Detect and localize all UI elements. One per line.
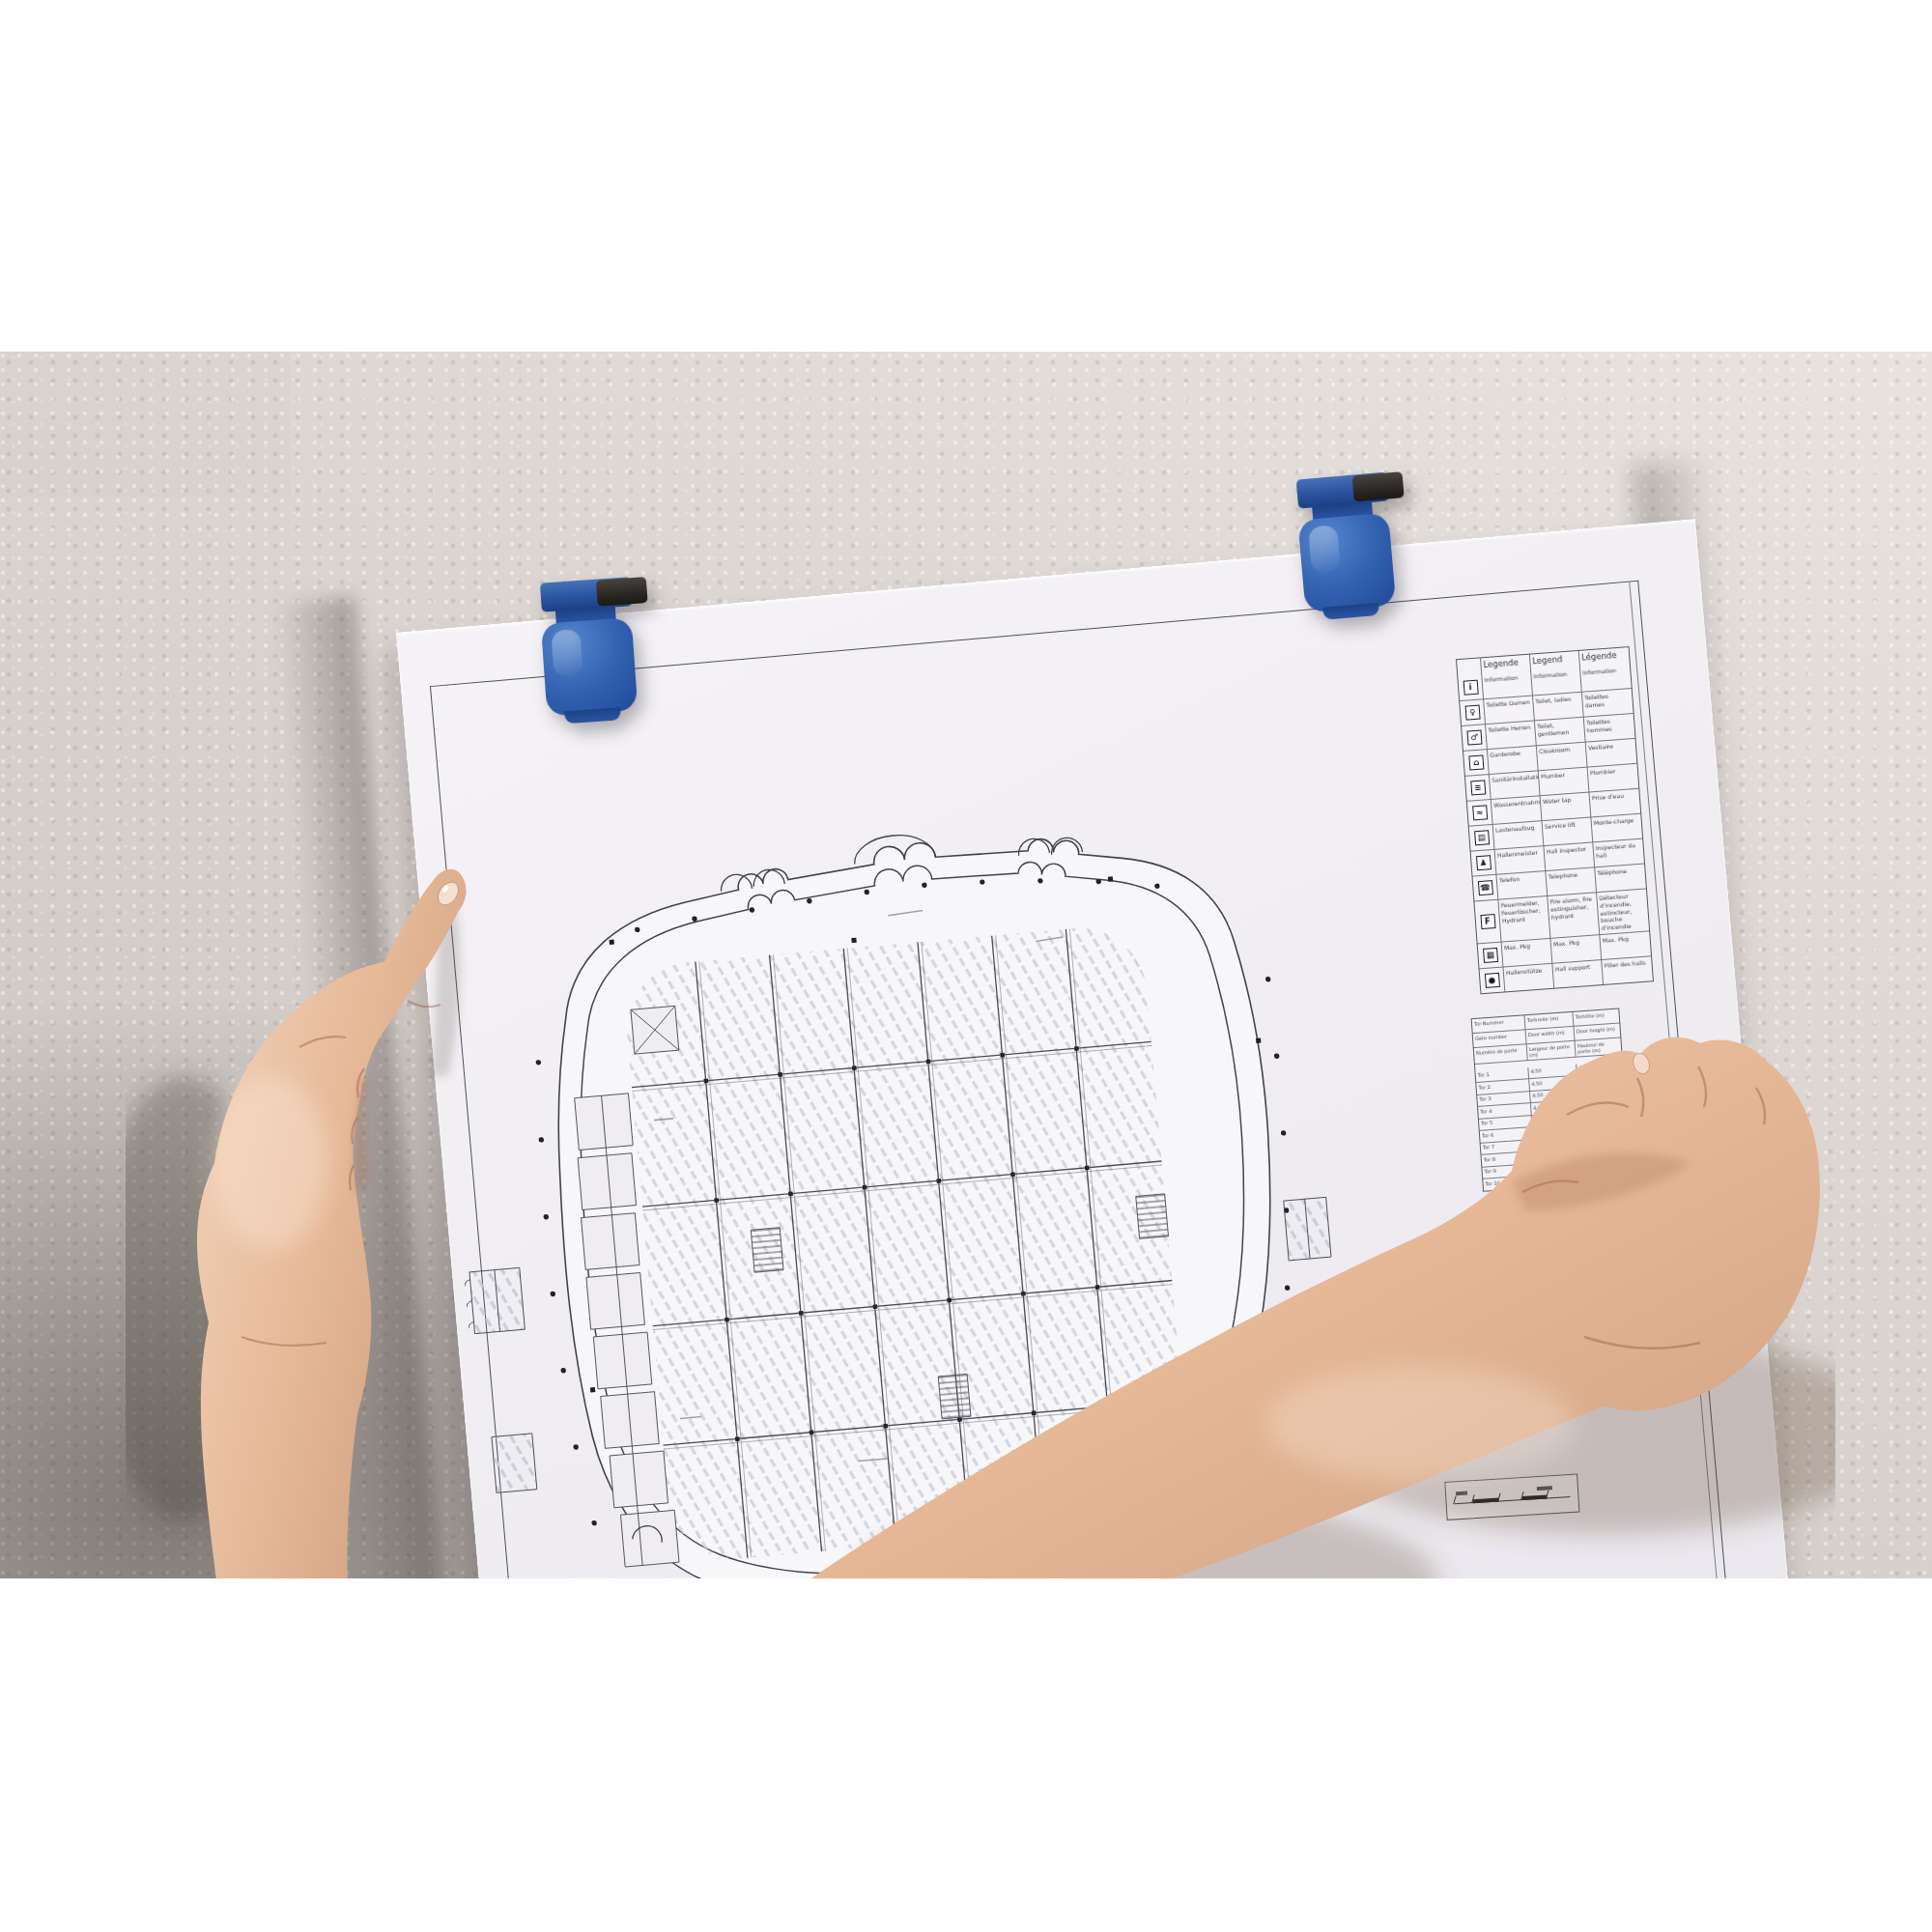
plumber-icon: ≡: [1465, 775, 1491, 801]
legend-label-fr: Détecteur d'incendie, extincteur, bouche…: [1596, 890, 1647, 935]
hall-inspector-icon: ♟: [1471, 850, 1496, 876]
clip-right-lever: [1352, 471, 1405, 501]
legend-label-fr: Inspecteur du hall: [1592, 839, 1642, 867]
legend-label-de: Lastenaufzug: [1492, 821, 1544, 849]
legend-icon-glyph: ♀: [1464, 705, 1480, 721]
legend-icon-glyph: ▦: [1483, 948, 1498, 963]
legend-label-de: Toilette Herren: [1485, 722, 1536, 750]
legend-label-en: Plumber: [1538, 768, 1589, 796]
gate-rows: Tor 14,504,50Tor 24,504,50Tor 34,504,50T…: [1475, 1061, 1630, 1190]
legend-label-de: Information: [1481, 671, 1532, 699]
legend-label-en: Hall support: [1551, 960, 1603, 988]
title-stamp-boxes: [1431, 1255, 1515, 1341]
stamp-box-2: [1434, 1294, 1514, 1334]
legend-label-fr: Plombier: [1587, 764, 1637, 792]
legend-label-en: Information: [1530, 668, 1581, 696]
cloakroom-icon: ⌂: [1463, 750, 1489, 776]
clip-left-lever: [596, 577, 648, 607]
legend-label-de: Garderobe: [1487, 746, 1538, 774]
legend-label-en: Water tap: [1540, 793, 1591, 821]
legend-icon-glyph: ▤: [1474, 830, 1490, 845]
legend-label-fr: Toilettes dames: [1581, 689, 1632, 717]
legend-label-de: Toilette Damen: [1483, 696, 1534, 724]
hall-hatching: [621, 923, 1193, 1565]
toilet-gents-icon: ♂: [1462, 724, 1487, 751]
legend-label-fr: Prise d'eau: [1588, 789, 1638, 817]
legend-icon-glyph: i: [1463, 680, 1478, 696]
fire-equipment-icon: F: [1474, 900, 1500, 944]
floor-plan-drawing: [424, 745, 1363, 1578]
gate-cell-c1: Tor 10: [1483, 1176, 1536, 1190]
legend-table: Legende Legend Légende iInformationInfor…: [1456, 646, 1654, 994]
legend-icon-glyph: ≈: [1472, 805, 1488, 820]
legend-label-de: Sanitärinstallation: [1489, 771, 1540, 799]
legend-label-en: Service lift: [1542, 817, 1593, 845]
legend-label-fr: Monte-charge: [1590, 814, 1640, 842]
gate-cell-c3: 4,50: [1583, 1169, 1629, 1183]
stamp-box-1: [1431, 1255, 1511, 1294]
legend-label-en: Telephone: [1545, 867, 1596, 895]
gate-cell-c2: 4,50: [1535, 1172, 1584, 1186]
scale-bar: [1444, 1474, 1579, 1520]
telephone-icon: ☎: [1473, 875, 1498, 901]
legend-rows: iInformationInformationInformation♀Toile…: [1458, 664, 1653, 993]
legend-label-en: Fire alarm, fire extinguisher, hydrant: [1547, 893, 1599, 938]
legend-label-de: Max. Pkg: [1501, 939, 1552, 967]
legend-icon-glyph: F: [1480, 914, 1495, 929]
legend-label-en: Toilet, gentlemen: [1534, 718, 1585, 746]
legend-header-icon-col: [1457, 658, 1481, 676]
legend-label-de: Hallenmeister: [1494, 846, 1546, 874]
hall-support-icon: ●: [1480, 968, 1505, 994]
gate-table: Tor-NummerTorbreite (m)Torhöhe (m)Gate n…: [1471, 1008, 1632, 1191]
scale-bar-line: [1455, 1496, 1571, 1504]
legend-label-fr: Max. Pkg: [1599, 931, 1649, 959]
legend-label-de: Wasserentnahme: [1491, 796, 1542, 824]
legend-icon-glyph: ≡: [1470, 780, 1486, 795]
legend-label-en: Max. Pkg: [1549, 935, 1601, 963]
legend-label-en: Toilet, ladies: [1532, 693, 1583, 721]
photo: Legende Legend Légende iInformationInfor…: [0, 352, 1932, 1578]
water-tap-icon: ≈: [1467, 800, 1492, 826]
legend-label-fr: Toilettes hommes: [1583, 714, 1634, 742]
clip-left-body: [541, 617, 638, 716]
legend-icon-glyph: ♟: [1475, 855, 1491, 870]
legend-icon-glyph: ☎: [1477, 880, 1492, 895]
max-load-icon: ▦: [1478, 943, 1503, 969]
legend-label-de: Feuermelder, Feuerlöscher, Hydrant: [1497, 896, 1549, 942]
legend-label-en: Hall inspector: [1543, 842, 1594, 870]
legend-label-de: Hallenstütze: [1503, 964, 1554, 992]
service-lift-icon: ▤: [1469, 825, 1494, 851]
toilet-ladies-icon: ♀: [1460, 699, 1485, 725]
legend-icon-glyph: ●: [1484, 973, 1499, 988]
paper-clip-left: [536, 576, 652, 727]
legend-icon-glyph: ♂: [1466, 730, 1482, 746]
paper-clip-right: [1293, 470, 1411, 624]
legend-label-en: Cloakroom: [1536, 743, 1587, 771]
legend-label-fr: Téléphone: [1594, 865, 1644, 893]
gate-cell-c3: Hauteur de porte (m): [1575, 1038, 1620, 1057]
legend-icon-glyph: ⌂: [1468, 754, 1484, 770]
legend-label-fr: Information: [1579, 664, 1630, 692]
clip-right-body: [1297, 513, 1396, 613]
legend-label-fr: Vestiaire: [1585, 739, 1635, 767]
information-icon: i: [1458, 674, 1483, 700]
legend-label-de: Telefon: [1495, 871, 1547, 899]
legend-label-fr: Pilier des halls: [1601, 956, 1651, 984]
clip-left-lip: [564, 707, 621, 724]
